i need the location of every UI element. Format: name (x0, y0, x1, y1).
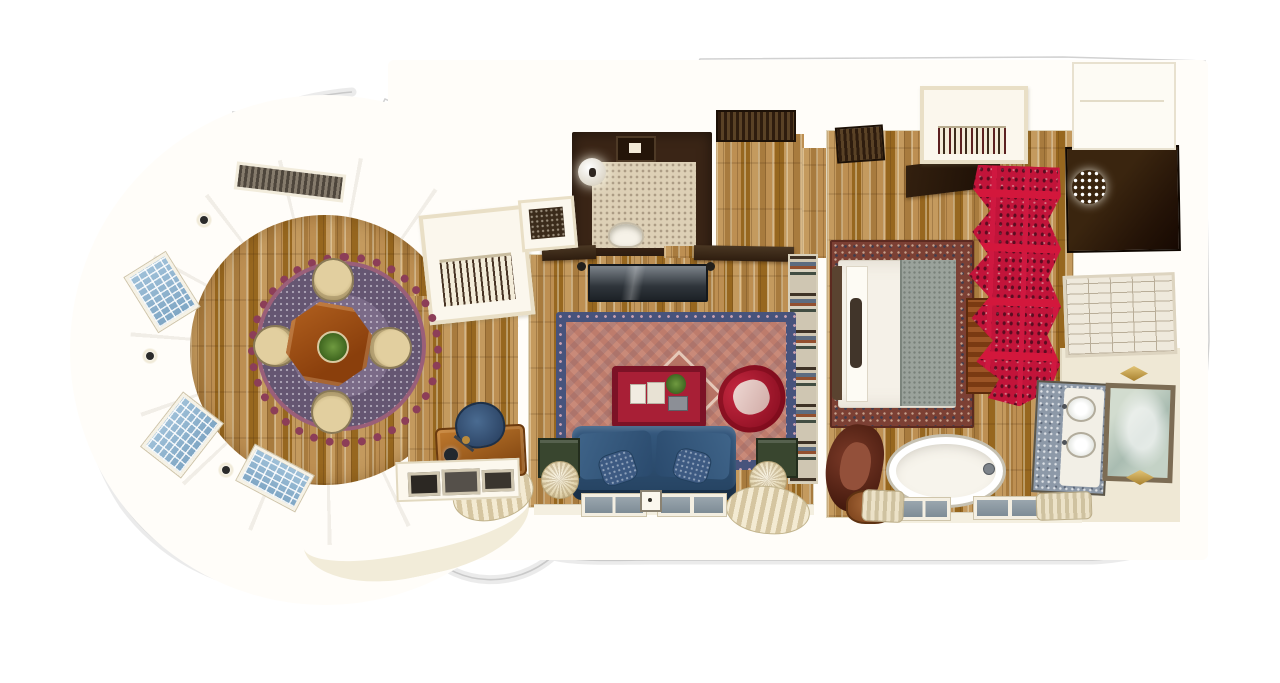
turret-sconce-west (142, 348, 158, 364)
basin-faucet-1 (1062, 404, 1067, 409)
living-window-left (582, 494, 646, 516)
linen-cabinet-shelf-line (1080, 100, 1164, 102)
chandelier (1072, 170, 1106, 204)
bed-bolster (850, 298, 862, 368)
wall-speaker-left (577, 262, 586, 271)
bath-mat-right (1036, 491, 1093, 521)
bedroom-closet-hangers (938, 126, 1006, 154)
print-console (395, 458, 520, 502)
entry-hall-floor (716, 134, 804, 256)
framed-print-2 (442, 468, 481, 495)
entry-door-mat-2 (835, 124, 885, 163)
turret-sconce-north (196, 212, 212, 228)
bath-mat-left (861, 489, 905, 523)
framed-mirror (1102, 383, 1175, 483)
entry-door-mat (716, 110, 796, 142)
vanity-basin-1 (1066, 396, 1096, 422)
bed-grey-blanket (900, 260, 956, 406)
wall-speaker-right (706, 262, 715, 271)
framed-print-3 (482, 469, 515, 492)
pedestal-sink (608, 222, 644, 248)
closet-hanging-clothes (439, 252, 516, 306)
shower-tile (1063, 272, 1178, 358)
door-lintel-right (694, 245, 794, 262)
sofa (572, 426, 736, 500)
dining-chair-east (368, 327, 412, 369)
bath-window-left (898, 498, 950, 520)
light-switch (640, 490, 662, 512)
dining-chair-north (311, 257, 355, 302)
armchair-cushion (729, 375, 774, 418)
living-window-right (658, 494, 726, 516)
headboard (832, 266, 842, 400)
light-switch-dot (648, 498, 652, 502)
coffee-ottoman (612, 366, 706, 428)
framed-print-1 (408, 472, 441, 497)
ottoman-book-1 (630, 384, 646, 404)
desk-lamp-base (462, 436, 470, 444)
basin-faucet-2 (1062, 440, 1067, 445)
luggage-rack (529, 207, 565, 240)
tub-faucet (983, 463, 995, 475)
table-centerpiece-plant (317, 331, 349, 363)
floor-plan-illustration (0, 0, 1280, 683)
closet-niche (518, 196, 578, 253)
globe-pendant-light (578, 158, 606, 186)
vanity-basin-2 (1066, 432, 1096, 458)
ottoman-plant (666, 374, 686, 394)
ottoman-book-2 (647, 382, 665, 404)
linen-cabinet (1072, 62, 1176, 150)
powder-room-threshold (664, 246, 698, 258)
ceiling-vent-light (629, 143, 641, 153)
turret-sconce-south (218, 462, 234, 478)
leather-armchair-seat (836, 440, 874, 492)
ball-lamp-left (541, 461, 579, 499)
pendant-finial (589, 168, 596, 177)
ottoman-tray (668, 396, 688, 411)
hall-closet (419, 205, 536, 325)
media-console (588, 264, 708, 302)
bedroom-closet (920, 86, 1028, 164)
ceiling-vent (616, 136, 656, 162)
